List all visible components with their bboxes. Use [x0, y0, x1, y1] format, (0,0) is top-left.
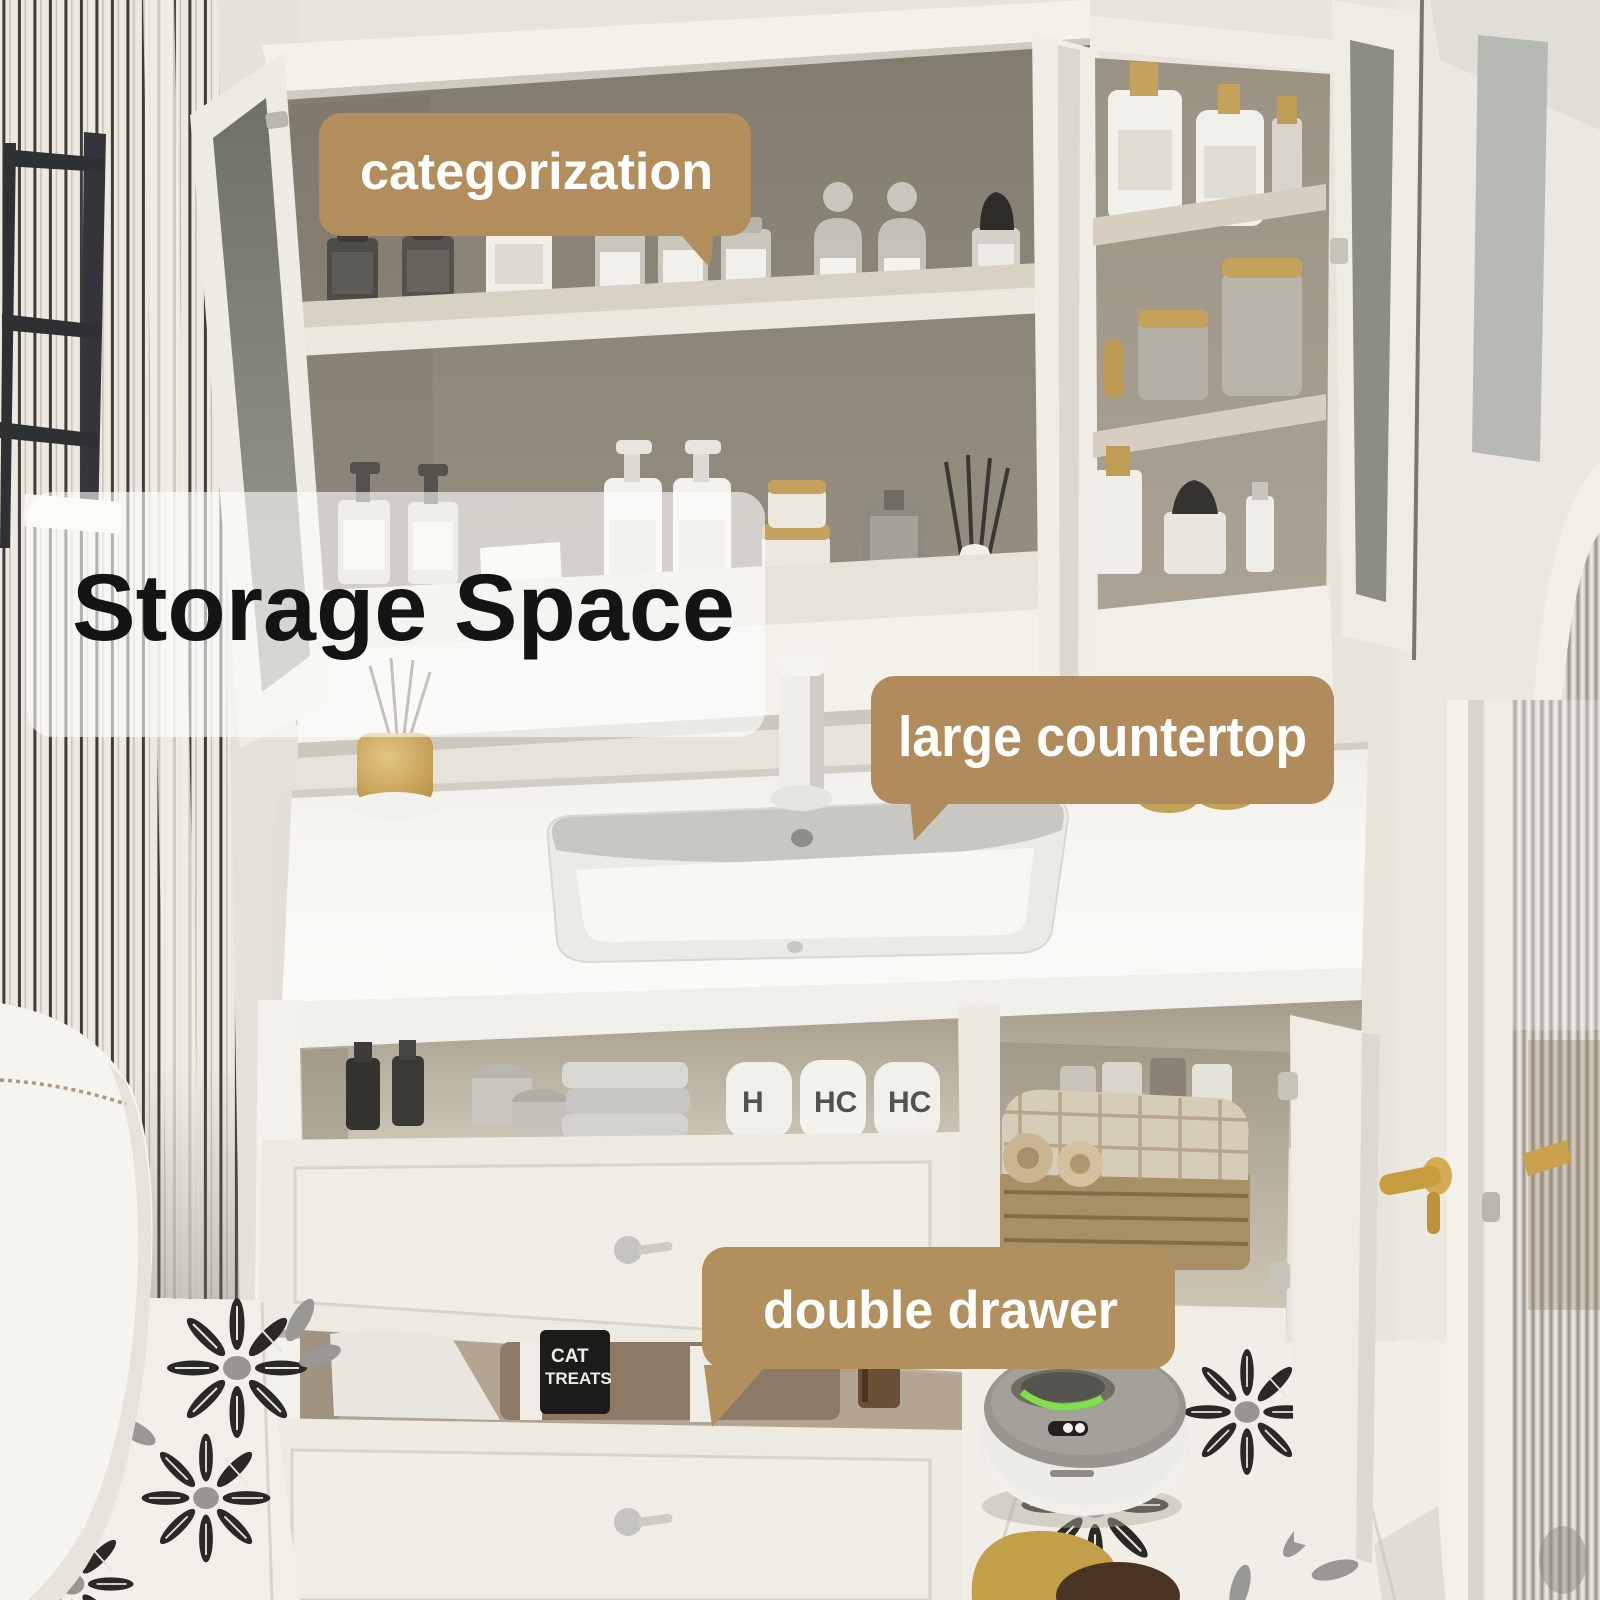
svg-text:large countertop: large countertop [898, 705, 1307, 769]
svg-text:H: H [742, 1086, 764, 1119]
svg-text:HC: HC [888, 1086, 931, 1119]
svg-text:TREATS: TREATS [545, 1369, 612, 1388]
svg-text:categorization: categorization [360, 143, 713, 201]
svg-text:double drawer: double drawer [763, 1281, 1118, 1340]
svg-text:CAT: CAT [551, 1346, 589, 1367]
svg-text:Storage Space: Storage Space [72, 555, 735, 661]
svg-text:HC: HC [814, 1086, 857, 1119]
